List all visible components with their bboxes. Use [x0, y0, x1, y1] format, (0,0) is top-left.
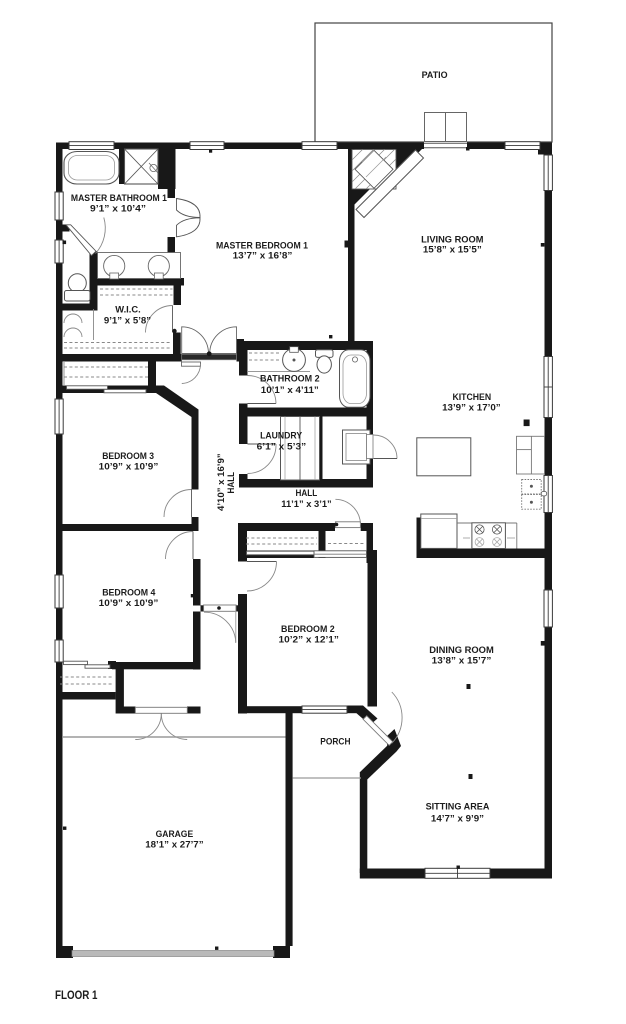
svg-text:15’8” x 15’5”: 15’8” x 15’5” [423, 245, 482, 256]
svg-text:18’1” x 27’7”: 18’1” x 27’7” [145, 839, 204, 850]
svg-text:KITCHEN: KITCHEN [452, 392, 491, 403]
svg-text:13’7” x 16’8”: 13’7” x 16’8” [233, 251, 293, 262]
svg-text:10’2” x 12’1”: 10’2” x 12’1” [279, 635, 340, 646]
svg-text:14’7” x 9’9”: 14’7” x 9’9” [431, 814, 484, 825]
svg-text:FLOOR 1: FLOOR 1 [55, 990, 98, 1002]
svg-text:W.I.C.: W.I.C. [115, 305, 141, 316]
svg-text:BEDROOM 2: BEDROOM 2 [281, 624, 335, 635]
svg-text:PORCH: PORCH [320, 737, 350, 748]
svg-text:10’9” x 10’9”: 10’9” x 10’9” [99, 598, 159, 609]
svg-text:4’10” x 16’9”: 4’10” x 16’9” [216, 453, 227, 511]
svg-text:DINING ROOM: DINING ROOM [429, 645, 494, 656]
svg-text:13’9” x 17’0”: 13’9” x 17’0” [442, 403, 501, 414]
svg-text:11’1” x 3’1”: 11’1” x 3’1” [281, 499, 332, 510]
svg-text:BEDROOM 4: BEDROOM 4 [102, 587, 156, 598]
svg-text:GARAGE: GARAGE [156, 829, 194, 840]
svg-text:BEDROOM 3: BEDROOM 3 [102, 451, 154, 462]
svg-text:6’1” x 5’3”: 6’1” x 5’3” [257, 441, 307, 452]
svg-text:9’1” x 5’8”: 9’1” x 5’8” [104, 315, 152, 326]
svg-text:10’1” x 4’11”: 10’1” x 4’11” [261, 385, 319, 396]
svg-text:13’8” x 15’7”: 13’8” x 15’7” [432, 656, 492, 667]
svg-text:LAUNDRY: LAUNDRY [260, 431, 303, 442]
svg-text:10’9” x 10’9”: 10’9” x 10’9” [99, 462, 159, 473]
svg-text:HALL: HALL [296, 488, 318, 499]
svg-text:HALL: HALL [226, 472, 237, 494]
svg-text:BATHROOM 2: BATHROOM 2 [260, 374, 320, 385]
svg-text:9’1” x 10’4”: 9’1” x 10’4” [90, 203, 146, 214]
svg-text:SITTING AREA: SITTING AREA [426, 802, 490, 813]
svg-text:PATIO: PATIO [422, 70, 448, 81]
